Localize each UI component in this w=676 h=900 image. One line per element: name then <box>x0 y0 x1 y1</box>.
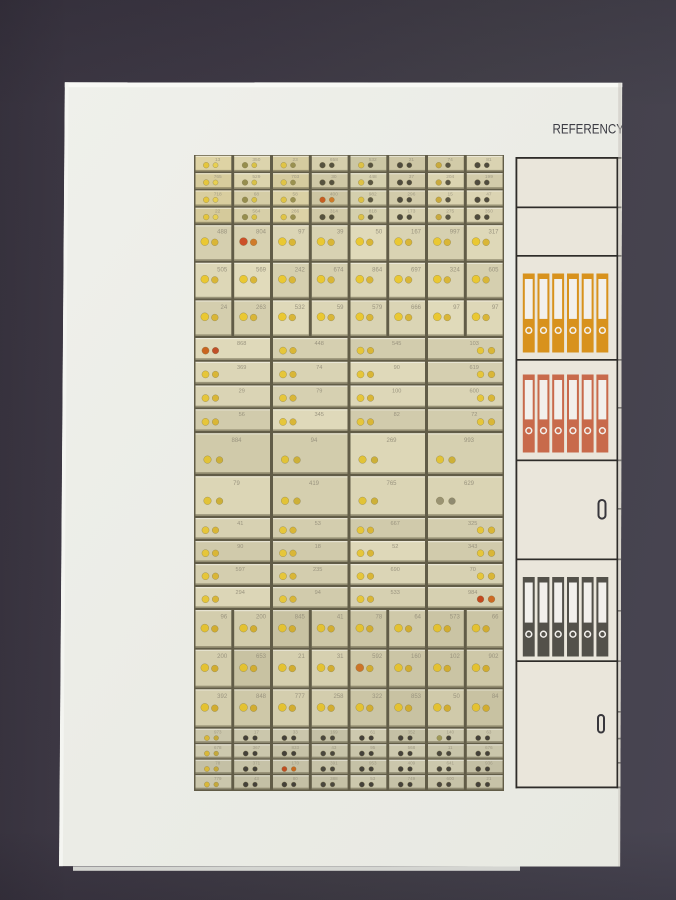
svg-text:41: 41 <box>337 615 344 621</box>
svg-text:324: 324 <box>450 267 461 273</box>
svg-text:605: 605 <box>488 267 499 273</box>
svg-text:242: 242 <box>295 267 306 273</box>
svg-text:690: 690 <box>391 567 400 573</box>
svg-text:41: 41 <box>237 521 243 527</box>
svg-text:269: 269 <box>386 438 397 444</box>
svg-text:30: 30 <box>331 174 337 180</box>
svg-text:170: 170 <box>291 761 299 766</box>
svg-text:697: 697 <box>411 267 422 273</box>
svg-text:568: 568 <box>408 745 416 750</box>
svg-text:371: 371 <box>253 761 261 766</box>
svg-text:505: 505 <box>217 267 228 273</box>
svg-text:173: 173 <box>407 209 415 215</box>
svg-text:72: 72 <box>471 412 477 418</box>
svg-text:448: 448 <box>315 341 324 347</box>
svg-text:884: 884 <box>231 438 242 444</box>
svg-text:868: 868 <box>237 341 246 347</box>
svg-text:718: 718 <box>214 191 222 197</box>
svg-text:600: 600 <box>446 776 454 781</box>
svg-text:53: 53 <box>370 776 376 781</box>
svg-text:266: 266 <box>291 209 299 215</box>
svg-text:79: 79 <box>316 389 322 395</box>
svg-text:667: 667 <box>391 521 400 527</box>
svg-text:973: 973 <box>214 730 222 735</box>
svg-text:345: 345 <box>315 412 324 418</box>
svg-text:43: 43 <box>331 745 337 750</box>
svg-text:579: 579 <box>372 305 383 311</box>
svg-text:569: 569 <box>256 267 267 273</box>
svg-text:22: 22 <box>215 209 221 215</box>
svg-text:90: 90 <box>394 365 400 371</box>
svg-text:674: 674 <box>333 267 344 273</box>
svg-text:258: 258 <box>333 694 344 700</box>
svg-text:350: 350 <box>252 157 260 163</box>
svg-text:24: 24 <box>221 305 228 311</box>
svg-text:678: 678 <box>214 745 222 750</box>
svg-text:666: 666 <box>411 305 422 311</box>
svg-text:777: 777 <box>295 694 306 700</box>
svg-text:853: 853 <box>411 694 422 700</box>
svg-text:78: 78 <box>215 761 221 766</box>
svg-text:29: 29 <box>239 389 245 395</box>
svg-text:58: 58 <box>293 191 299 197</box>
svg-text:703: 703 <box>291 174 299 180</box>
svg-text:641: 641 <box>446 761 454 766</box>
svg-text:37: 37 <box>409 174 415 180</box>
svg-text:81: 81 <box>486 157 492 163</box>
svg-text:818: 818 <box>369 209 377 215</box>
svg-text:845: 845 <box>295 615 306 621</box>
svg-text:629: 629 <box>464 481 475 487</box>
svg-text:84: 84 <box>492 694 499 700</box>
svg-text:573: 573 <box>450 615 461 621</box>
svg-text:97: 97 <box>453 305 460 311</box>
svg-text:39: 39 <box>337 230 344 236</box>
svg-text:199: 199 <box>485 174 493 180</box>
svg-text:REFERENCY: REFERENCY <box>553 121 625 137</box>
svg-text:21: 21 <box>486 776 492 781</box>
svg-text:18: 18 <box>315 544 321 550</box>
svg-text:64: 64 <box>414 615 421 621</box>
svg-text:864: 864 <box>372 267 383 273</box>
svg-text:400: 400 <box>330 191 338 197</box>
svg-text:52: 52 <box>392 544 398 550</box>
svg-text:564: 564 <box>252 209 260 215</box>
svg-text:263: 263 <box>256 305 267 311</box>
svg-text:21: 21 <box>298 654 305 660</box>
svg-text:804: 804 <box>256 230 267 236</box>
svg-text:902: 902 <box>488 654 499 660</box>
svg-text:94: 94 <box>315 590 321 596</box>
svg-text:53: 53 <box>315 521 321 527</box>
svg-text:15: 15 <box>448 191 454 197</box>
svg-text:160: 160 <box>411 654 422 660</box>
svg-text:78: 78 <box>376 615 383 621</box>
svg-text:63: 63 <box>486 730 492 735</box>
svg-text:982: 982 <box>369 191 377 197</box>
svg-text:275: 275 <box>446 209 454 215</box>
svg-text:94: 94 <box>311 438 318 444</box>
svg-text:97: 97 <box>492 305 499 311</box>
svg-text:391: 391 <box>330 761 338 766</box>
svg-text:619: 619 <box>470 365 479 371</box>
svg-text:90: 90 <box>237 544 243 550</box>
svg-text:200: 200 <box>256 615 267 621</box>
svg-text:95: 95 <box>370 745 376 750</box>
svg-text:448: 448 <box>369 174 377 180</box>
svg-text:43: 43 <box>254 776 260 781</box>
svg-text:74: 74 <box>448 157 454 163</box>
svg-text:294: 294 <box>236 590 245 596</box>
svg-text:848: 848 <box>256 694 267 700</box>
svg-text:235: 235 <box>313 567 322 573</box>
svg-text:140: 140 <box>446 730 454 735</box>
svg-text:314: 314 <box>330 209 338 215</box>
svg-text:749: 749 <box>408 776 416 781</box>
svg-text:80: 80 <box>293 776 299 781</box>
svg-text:532: 532 <box>369 157 377 163</box>
svg-text:296: 296 <box>407 191 415 197</box>
svg-text:409: 409 <box>408 761 416 766</box>
svg-text:388: 388 <box>330 776 338 781</box>
svg-text:79: 79 <box>233 481 240 487</box>
svg-text:419: 419 <box>309 481 320 487</box>
svg-text:488: 488 <box>217 230 228 236</box>
svg-text:676: 676 <box>485 745 493 750</box>
svg-text:97: 97 <box>298 230 305 236</box>
svg-text:17: 17 <box>254 730 260 735</box>
svg-text:169: 169 <box>330 730 338 735</box>
svg-text:765: 765 <box>386 481 397 487</box>
svg-text:200: 200 <box>217 654 228 660</box>
svg-text:82: 82 <box>394 412 400 418</box>
svg-text:658: 658 <box>330 157 338 163</box>
svg-text:532: 532 <box>295 305 306 311</box>
svg-text:369: 369 <box>237 365 246 371</box>
svg-text:23: 23 <box>293 157 299 163</box>
svg-text:833: 833 <box>291 745 299 750</box>
svg-text:545: 545 <box>392 341 401 347</box>
svg-text:529: 529 <box>252 174 260 180</box>
svg-text:653: 653 <box>256 654 267 660</box>
svg-text:96: 96 <box>221 615 228 621</box>
svg-text:597: 597 <box>236 567 245 573</box>
svg-text:350: 350 <box>485 209 493 215</box>
svg-text:325: 325 <box>468 521 477 527</box>
svg-text:592: 592 <box>372 654 383 660</box>
svg-text:317: 317 <box>488 230 499 236</box>
svg-text:367: 367 <box>253 745 261 750</box>
svg-text:993: 993 <box>464 438 475 444</box>
svg-text:600: 600 <box>470 389 479 395</box>
svg-text:765: 765 <box>214 174 222 180</box>
svg-text:167: 167 <box>411 230 422 236</box>
svg-text:59: 59 <box>337 305 344 311</box>
svg-text:50: 50 <box>376 230 383 236</box>
svg-text:953: 953 <box>369 761 377 766</box>
svg-text:997: 997 <box>450 230 461 236</box>
svg-text:936: 936 <box>485 761 493 766</box>
svg-text:66: 66 <box>492 615 499 621</box>
svg-text:31: 31 <box>337 654 344 660</box>
svg-text:13: 13 <box>215 157 221 163</box>
svg-text:74: 74 <box>316 365 322 371</box>
svg-text:68: 68 <box>254 191 260 197</box>
svg-text:11: 11 <box>448 745 453 750</box>
svg-text:56: 56 <box>239 412 245 418</box>
svg-text:352: 352 <box>408 730 416 735</box>
svg-text:322: 322 <box>372 694 383 700</box>
svg-text:533: 533 <box>391 590 400 596</box>
svg-text:204: 204 <box>446 174 454 180</box>
svg-text:343: 343 <box>468 544 477 550</box>
svg-text:50: 50 <box>453 694 460 700</box>
svg-text:47: 47 <box>486 191 492 197</box>
svg-text:392: 392 <box>217 694 228 700</box>
svg-text:779: 779 <box>214 776 222 781</box>
svg-text:100: 100 <box>392 389 401 395</box>
svg-text:70: 70 <box>470 567 476 573</box>
svg-text:33: 33 <box>293 730 299 735</box>
svg-text:21: 21 <box>409 157 415 163</box>
svg-text:984: 984 <box>468 590 477 596</box>
svg-text:61: 61 <box>370 730 376 735</box>
svg-text:103: 103 <box>470 341 479 347</box>
svg-text:102: 102 <box>450 654 461 660</box>
